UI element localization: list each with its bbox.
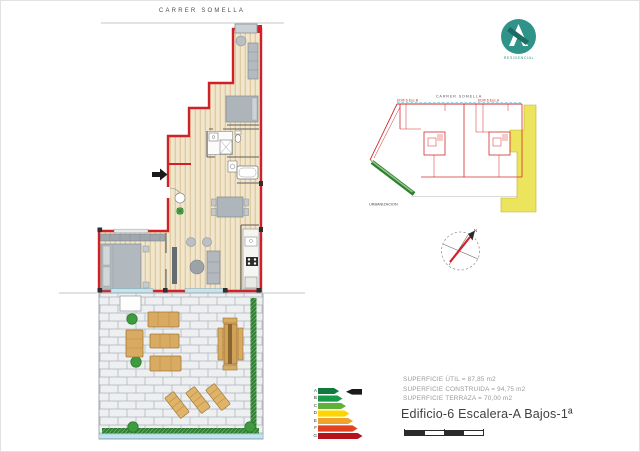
compass-needle: [450, 237, 470, 262]
apartment-plan: [98, 24, 264, 293]
toilet: [235, 135, 241, 143]
pillow: [103, 246, 110, 265]
pillow: [252, 98, 257, 120]
energy-grade-row: D: [311, 410, 406, 416]
energy-grade-row: G: [311, 433, 406, 439]
energy-grade-bar: [318, 388, 339, 394]
compass-north-label: N: [474, 228, 477, 233]
entry-door-gap: [166, 187, 170, 198]
site-esc-b-label: EDIF.6 Esc.B: [397, 99, 419, 103]
dining-set: [212, 197, 249, 217]
washer: [228, 161, 237, 172]
round-table: [190, 260, 204, 274]
pouf: [187, 238, 196, 247]
scale-bar: [404, 430, 484, 436]
energy-grade-bar: [318, 410, 350, 416]
energy-grade-bar: [318, 433, 363, 439]
energy-grade-row: E: [311, 418, 406, 424]
area-util: SUPERFICIE ÚTIL = 87,85 m2: [403, 376, 583, 383]
sink: [209, 133, 218, 141]
brand-logo-text: RESIDENCIAL: [495, 56, 543, 60]
pillow: [103, 267, 110, 286]
canopy: [235, 24, 257, 33]
pouf: [203, 238, 212, 247]
entry-table: [175, 193, 185, 203]
site-plan-highlight-block: [501, 105, 536, 212]
sofa: [207, 251, 220, 284]
energy-grade-letter: C: [311, 403, 318, 409]
brand-logo: [501, 19, 536, 54]
energy-grade-letter: A: [311, 388, 318, 394]
site-esc-a-label: EDIF.6 Esc.A: [478, 99, 500, 103]
brand-logo-mark: [501, 19, 536, 54]
site-plan-buildings: [370, 104, 522, 177]
energy-grade-bar: [318, 403, 346, 409]
compass-rose: N: [442, 228, 480, 270]
nightstand: [143, 282, 149, 288]
plan-title: Edificio-6 Escalera-A Bajos-1ª: [401, 407, 621, 421]
energy-grade-letter: E: [311, 418, 318, 424]
energy-rating-indicator-arrow: [346, 389, 362, 395]
energy-grade-bar: [318, 418, 353, 424]
energy-grade-letter: F: [311, 425, 318, 431]
site-plan: CARRER SOMELLA EDIF.6 Esc.B EDIF.6 Esc.A…: [369, 95, 536, 213]
area-terraza: SUPERFICIE TERRAZA = 70,00 m2: [403, 395, 583, 402]
energy-rating-label: A B C D E F G: [311, 388, 406, 440]
pool-edge: [99, 434, 263, 439]
hedge-right: [251, 298, 257, 429]
energy-grade-row: A: [311, 388, 406, 394]
energy-grade-row: F: [311, 425, 406, 431]
kitchen-sink: [245, 237, 257, 246]
surface-areas: SUPERFICIE ÚTIL = 87,85 m2 SUPERFICIE CO…: [403, 376, 583, 405]
energy-grade-row: C: [311, 403, 406, 409]
energy-grade-letter: D: [311, 410, 318, 416]
energy-grade-bar: [318, 395, 343, 401]
site-street-label: CARRER SOMELLA: [436, 95, 482, 99]
stair-core: [502, 134, 508, 141]
cooktop: [246, 257, 258, 266]
site-bottom-label: URBANIZACION: [369, 203, 398, 207]
energy-grade-bar: [318, 425, 358, 431]
stair-core: [437, 134, 443, 141]
tv-unit: [172, 247, 177, 284]
energy-grade-letter: G: [311, 433, 318, 439]
fridge: [245, 277, 257, 288]
entry-arrow: [152, 169, 168, 181]
area-construida: SUPERFICIE CONSTRUIDA = 94,75 m2: [403, 386, 583, 393]
toilet-tank: [235, 131, 241, 134]
hedge-bottom: [102, 428, 259, 434]
street-name-label: CARRER SOMELLA: [147, 8, 257, 14]
nightstand: [143, 246, 149, 252]
kitchen: [241, 225, 259, 291]
energy-grade-row: B: [311, 395, 406, 401]
energy-grade-letter: B: [311, 395, 318, 401]
chair: [236, 36, 246, 46]
floor-plan-sheet: CARRER SOMELLA EDIF.6 Esc.B EDIF.6 Esc.A…: [0, 0, 640, 452]
storage: [120, 296, 141, 311]
terrace-plan: [99, 293, 263, 439]
wall-stub: [258, 25, 263, 33]
